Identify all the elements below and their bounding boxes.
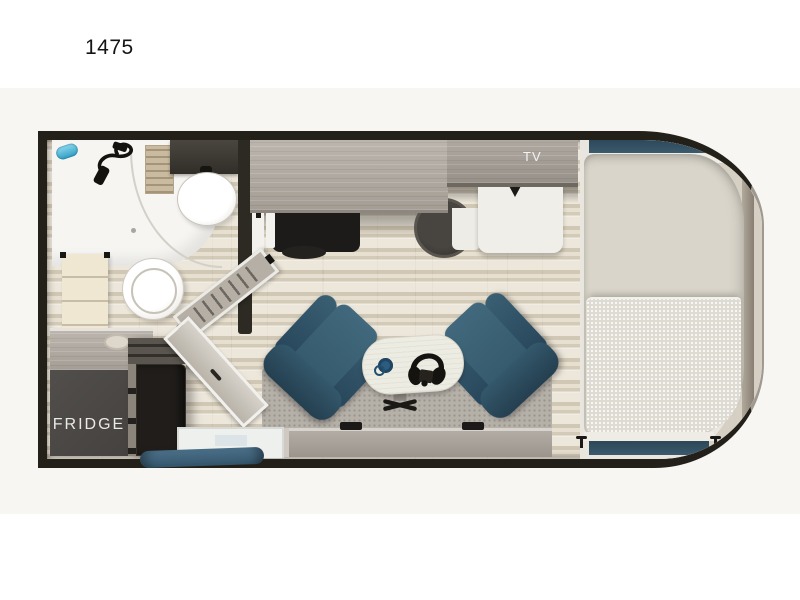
floorplan-page: 1475 <box>0 0 800 600</box>
fridge-label: FRIDGE <box>53 416 125 434</box>
vanity-sink <box>177 172 237 226</box>
mug <box>378 358 393 373</box>
chair-base-pad <box>340 422 362 430</box>
shower-head-icon <box>88 141 142 189</box>
shelf-bracket <box>104 252 110 258</box>
window-latch-icon <box>575 436 588 448</box>
model-number-label: 1475 <box>85 36 134 60</box>
cabinet-step <box>452 208 480 250</box>
bed-mattress <box>584 154 744 436</box>
window-latch-icon <box>709 436 722 448</box>
step-mat <box>215 435 247 446</box>
rv-interior-floor: TV FRIDGE <box>47 140 762 459</box>
bed-window-bottom <box>589 441 709 455</box>
bed-window-top <box>589 140 715 153</box>
window-sill-bottom <box>584 432 714 441</box>
shower-drain <box>131 228 136 233</box>
oven-hinge <box>128 364 136 456</box>
headphones-icon <box>401 337 456 395</box>
tv-cabinet: TV <box>447 140 578 187</box>
cooktop <box>272 211 360 252</box>
media-cabinet <box>478 184 563 253</box>
towel-shelf <box>62 254 108 332</box>
counter-sink-small <box>104 334 130 350</box>
chair-base-pad <box>462 422 484 430</box>
kitchen-counter <box>250 140 448 213</box>
refrigerator: FRIDGE <box>50 370 128 456</box>
toilet-seat <box>131 268 177 314</box>
bed-blanket <box>586 297 741 433</box>
door-hinge-icon <box>265 254 275 265</box>
bench-cabinet <box>282 428 552 457</box>
shelf-bracket <box>60 252 66 258</box>
tv-label: TV <box>523 149 542 164</box>
door-handle-icon <box>210 368 222 381</box>
counter-end-panel <box>266 212 275 248</box>
